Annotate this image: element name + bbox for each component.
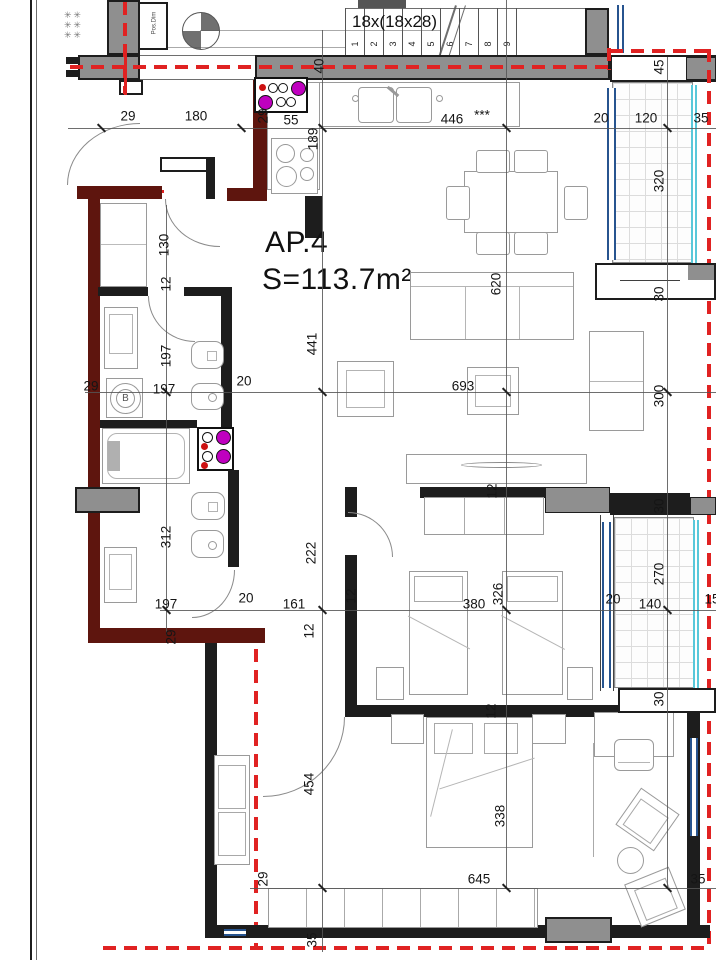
pillow [507,576,558,602]
stair-number: 5 [426,41,436,46]
stair-top-bar [358,0,406,8]
dim-label: 620 [489,273,503,296]
tv [461,462,542,468]
dining-chair [446,186,470,220]
dining-table [464,171,558,233]
kitchen-sink-basin-2 [396,87,432,123]
dim-label: 29 [256,108,270,123]
balcony1-top-wall-gray [686,57,716,80]
bottom-window [224,929,246,936]
basin [109,314,133,354]
dim-label: 320 [652,170,666,193]
wall-stub [66,57,78,64]
armchair [615,788,679,852]
dim-label: 35 [693,111,708,125]
riser-magenta [216,449,231,464]
stair-number: 7 [464,41,474,46]
dim-label: 12 [485,483,499,498]
stair-number: 3 [388,41,398,46]
dim-label: 20 [236,374,251,388]
riser-pipe [276,97,286,107]
dining-chair [476,232,510,255]
faucet-dot [352,95,359,102]
dim-label: 12 [344,588,358,603]
stair-number: 4 [407,41,417,46]
dim-label: 270 [652,563,666,586]
dim-label: 338 [493,805,507,828]
side-table-2 [467,367,519,415]
wall-gray-block [545,487,610,513]
dim-label: 197 [159,345,173,368]
left-wall [88,198,100,628]
dim-label: 29 [164,629,178,644]
riser-pipe [286,97,296,107]
kitchen-bottom-wall [227,188,267,201]
wardrobe-line [101,244,146,245]
bath2-right-wall [228,470,239,567]
stairs-label: 18x(18x28) [352,12,437,32]
dim-label: 30 [652,286,666,301]
dim-label: 20 [605,592,620,606]
blanket-fold [439,758,534,790]
wall-stub [66,70,78,77]
bidet-2 [191,530,224,558]
red-dash-bedroom-wall [254,628,258,948]
bath1-top-wall [98,287,148,296]
dim-label: 180 [185,109,208,123]
dim-label: 20 [238,591,253,605]
dim-label: 12 [302,623,316,638]
balcony1-wall-notch [620,280,680,281]
dim-label: 20 [593,111,608,125]
basin [109,554,132,590]
bidet-tap [208,393,217,402]
frame-line-2 [36,0,37,960]
dining-chair [476,150,510,173]
pillow [484,723,518,754]
toilet-2 [191,492,225,520]
dim-label: 197 [153,382,176,396]
stair-number: 2 [369,41,379,46]
stair-number: 9 [502,41,512,46]
pillow [414,576,463,602]
bath1-vanity [104,307,138,369]
riser-pipe [202,432,213,443]
riser-red-dot [201,443,208,450]
dim-label: 326 [491,583,505,606]
frame-line [30,0,32,960]
kitchen-sink-basin [358,87,394,123]
bathtub [102,428,190,484]
dim-label: 35 [690,872,705,886]
dim-label: 197 [155,597,178,611]
star-marks: ✳ ✳✳ ✳✳ ✳ [64,10,81,40]
dim-label: 30 [652,691,666,706]
stair-number: 8 [483,41,493,46]
red-dash-top [70,65,610,69]
window-segment [617,5,624,53]
side-table-inner [346,370,385,408]
dim-label: 441 [305,333,319,356]
dining-chair [514,150,548,173]
dining-chair [514,232,548,255]
chair-line [618,762,650,763]
riser-magenta [291,81,306,96]
dim-label: 454 [302,773,316,796]
thin-line [168,47,345,48]
burner [300,167,314,181]
balcony2-glazing [693,520,699,688]
dim-line-h [250,888,716,889]
bidet [191,383,224,410]
riser-red-dot [259,84,266,91]
dim-label: 693 [452,379,475,393]
dim-line-v [322,30,323,952]
burner [276,166,297,187]
nightstand [391,714,424,744]
tub-panel [108,441,120,471]
bath1-door-arc [148,296,195,342]
wardrobe-divider [464,498,465,534]
sofa-cushion [218,812,246,856]
thin-line [140,55,255,56]
sofa-cushion [218,765,246,809]
dim-label: 161 [283,597,306,611]
dim-label: 312 [159,526,173,549]
tv-cabinet [406,454,587,484]
apartment-label: AP.4 [265,226,328,260]
rug-line [593,743,594,857]
dim-label: 29 [256,871,270,886]
dim-label: 120 [635,111,658,125]
faucet-dot [436,95,443,102]
dim-label: 29 [120,109,135,123]
blanket-fold [501,615,565,650]
dim-label: 300 [652,385,666,408]
sofa-cushion-line [519,286,520,339]
entry-wall-stub [206,157,215,199]
bed-single-2 [502,571,563,695]
red-dash-top-right [610,49,710,53]
armchair-seat [623,798,669,844]
hall-wardrobe [100,203,147,287]
dim-label: 30 [652,498,666,513]
right-window [690,738,698,836]
dim-label: 45 [652,59,666,74]
floor-plan: ✳ ✳✳ ✳✳ ✳ Pos.Dim 123456789 18x(18x28) [0,0,716,960]
riser-red-dot [201,462,208,469]
thin-line [140,79,255,80]
dim-label: 12 [159,276,173,291]
nightstand [532,714,566,744]
shaft-label: Pos.Dim [151,12,157,35]
bedroom1-door-arc [348,512,393,557]
riser-pipe [202,451,213,462]
round-table [617,847,644,874]
blanket-fold [408,616,470,650]
dim-label: 222 [304,542,318,565]
dim-line-h [85,392,716,393]
bath-divider-wall [100,420,197,428]
nightstand [567,667,593,700]
sofa-chaise [589,331,644,431]
dim-label: 35 [305,932,319,947]
red-dash-bottom [103,946,710,950]
side-table [337,361,394,417]
armchair-2 [624,867,686,928]
wall-block [585,8,609,55]
dim-label: *** [474,108,490,122]
burner [276,144,295,163]
dim-label: 29 [83,379,98,393]
dim-label: 446 [441,112,464,126]
wardrobe-divider [504,498,505,534]
flush [208,502,218,512]
bed-single [409,571,468,695]
flush [207,351,217,361]
riser-pipe [278,83,288,93]
dining-chair [564,186,588,220]
red-riser-line [124,55,127,95]
stair-number: 1 [350,41,360,46]
balcony2-top-wall-gray [690,497,716,515]
dim-line-v [166,205,167,635]
washing-machine: B [106,378,143,418]
dim-label: 140 [639,597,662,611]
riser-pipe [268,83,278,93]
armchair-seat [634,878,678,921]
left-column [75,487,140,513]
hall-door-arc [165,199,220,247]
wall-line [600,515,601,691]
dim-line-v [667,57,668,888]
bedroom1-wardrobe [424,497,544,535]
dim-label: 15 [704,592,716,606]
bidet-tap [208,541,217,550]
bedroom1-left-wall [345,555,357,707]
plumbing-riser-bath [197,427,234,471]
bath2-vanity [104,547,137,603]
balcony2-top-wall [610,493,690,515]
pillow [434,723,473,754]
dim-label: 40 [312,58,326,73]
bedroom2-wardrobe [268,888,538,928]
nightstand [376,667,404,700]
benchmark-symbol [182,12,220,50]
dim-label: 55 [283,113,298,127]
toilet [191,341,224,369]
bedroom2-sofa [214,755,250,865]
sofa-cushion-line [590,381,643,382]
dim-label: 645 [468,872,491,886]
dim-line-h [160,610,716,611]
dim-line-v [506,0,507,888]
balcony1-wall-gray [688,265,714,280]
dim-label: 380 [463,597,486,611]
dim-label: 12 [484,703,498,718]
dim-line-h [68,128,716,129]
riser-magenta [216,430,231,445]
bottom-gray-block [545,917,612,943]
bed-double [426,717,533,848]
dim-label: 130 [157,234,171,257]
area-label: S=113.7m² [262,263,412,297]
dim-label: 189 [306,128,320,151]
sofa-cushion-line [465,286,466,339]
desk-chair [614,739,654,771]
